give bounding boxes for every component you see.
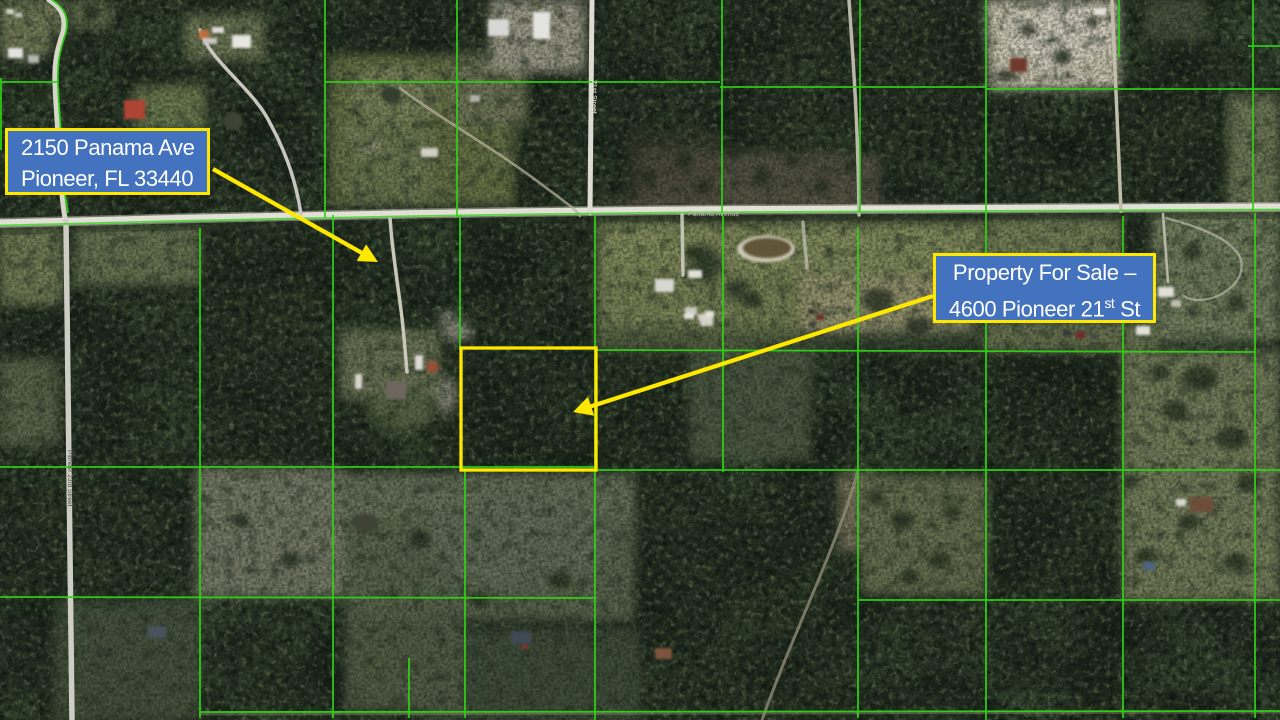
- svg-text:Panama Avenue: Panama Avenue: [688, 211, 739, 218]
- svg-text:Pioneer 23rd Street: Pioneer 23rd Street: [66, 450, 73, 507]
- svg-text:21st Street: 21st Street: [590, 80, 597, 114]
